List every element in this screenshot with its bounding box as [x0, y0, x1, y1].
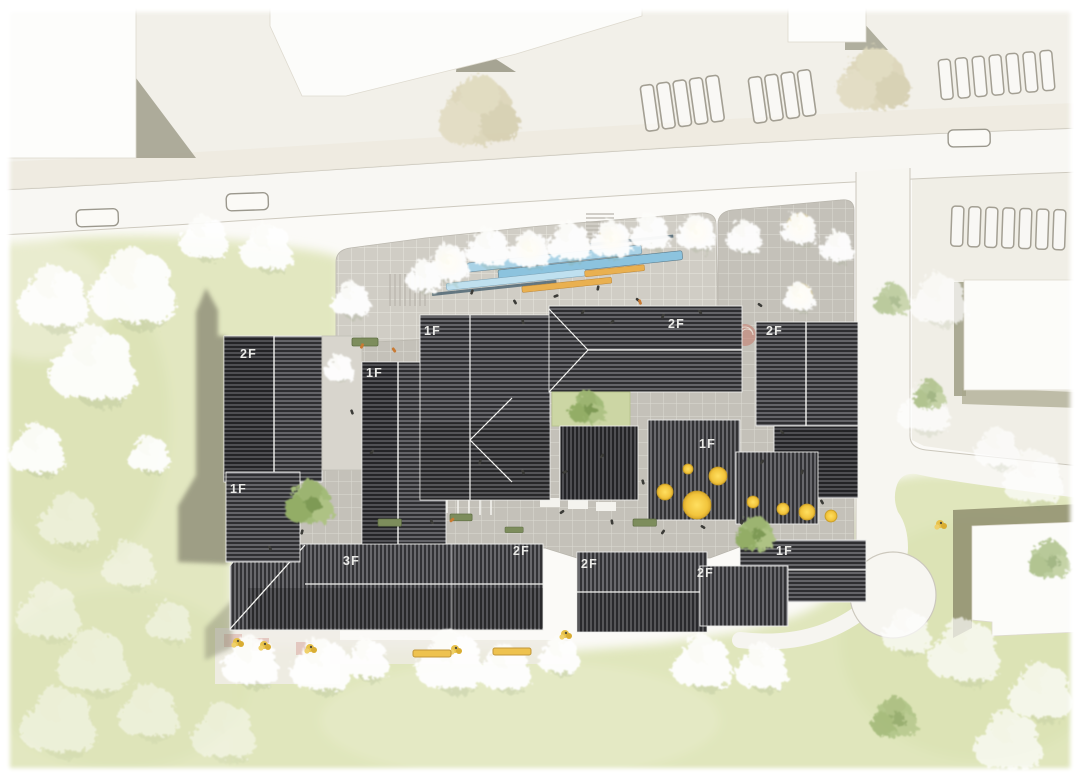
yellow-tree-icon [825, 510, 837, 522]
yellow-tree-icon [709, 467, 727, 485]
floor-label: 1F [699, 437, 716, 451]
site-plan-drawing: 2F 1F 1F 2F 2F 1F 1F 3F 2F 2F 2F 1F [0, 0, 1080, 780]
floor-label: 1F [366, 366, 383, 380]
yellow-tree-icon [747, 496, 759, 508]
car-icon [948, 129, 990, 147]
car-icon [76, 209, 119, 227]
yellow-tree-icon [799, 504, 815, 520]
yellow-tree-icon [777, 503, 789, 515]
yellow-tree-icon [657, 484, 673, 500]
site-plan-page: 2F 1F 1F 2F 2F 1F 1F 3F 2F 2F 2F 1F [0, 0, 1080, 780]
floor-label: 2F [697, 566, 714, 580]
floor-label: 1F [424, 324, 441, 338]
context-building-se [972, 522, 1080, 636]
floor-label: 2F [766, 324, 783, 338]
roof-center-ne [549, 306, 742, 392]
roof-center-dark [560, 426, 638, 500]
floor-label: 2F [581, 557, 598, 571]
context-building-e [964, 280, 1080, 390]
car-icon [226, 193, 269, 211]
yellow-tree-icon [683, 491, 711, 519]
floor-label: 2F [513, 544, 530, 558]
context-building-nw [0, 0, 136, 158]
floor-label: 1F [776, 544, 793, 558]
floor-label: 2F [668, 317, 685, 331]
floor-label: 3F [343, 554, 360, 568]
floor-label: 2F [240, 347, 257, 361]
floor-label: 1F [230, 482, 247, 496]
yellow-tree-icon [683, 464, 693, 474]
